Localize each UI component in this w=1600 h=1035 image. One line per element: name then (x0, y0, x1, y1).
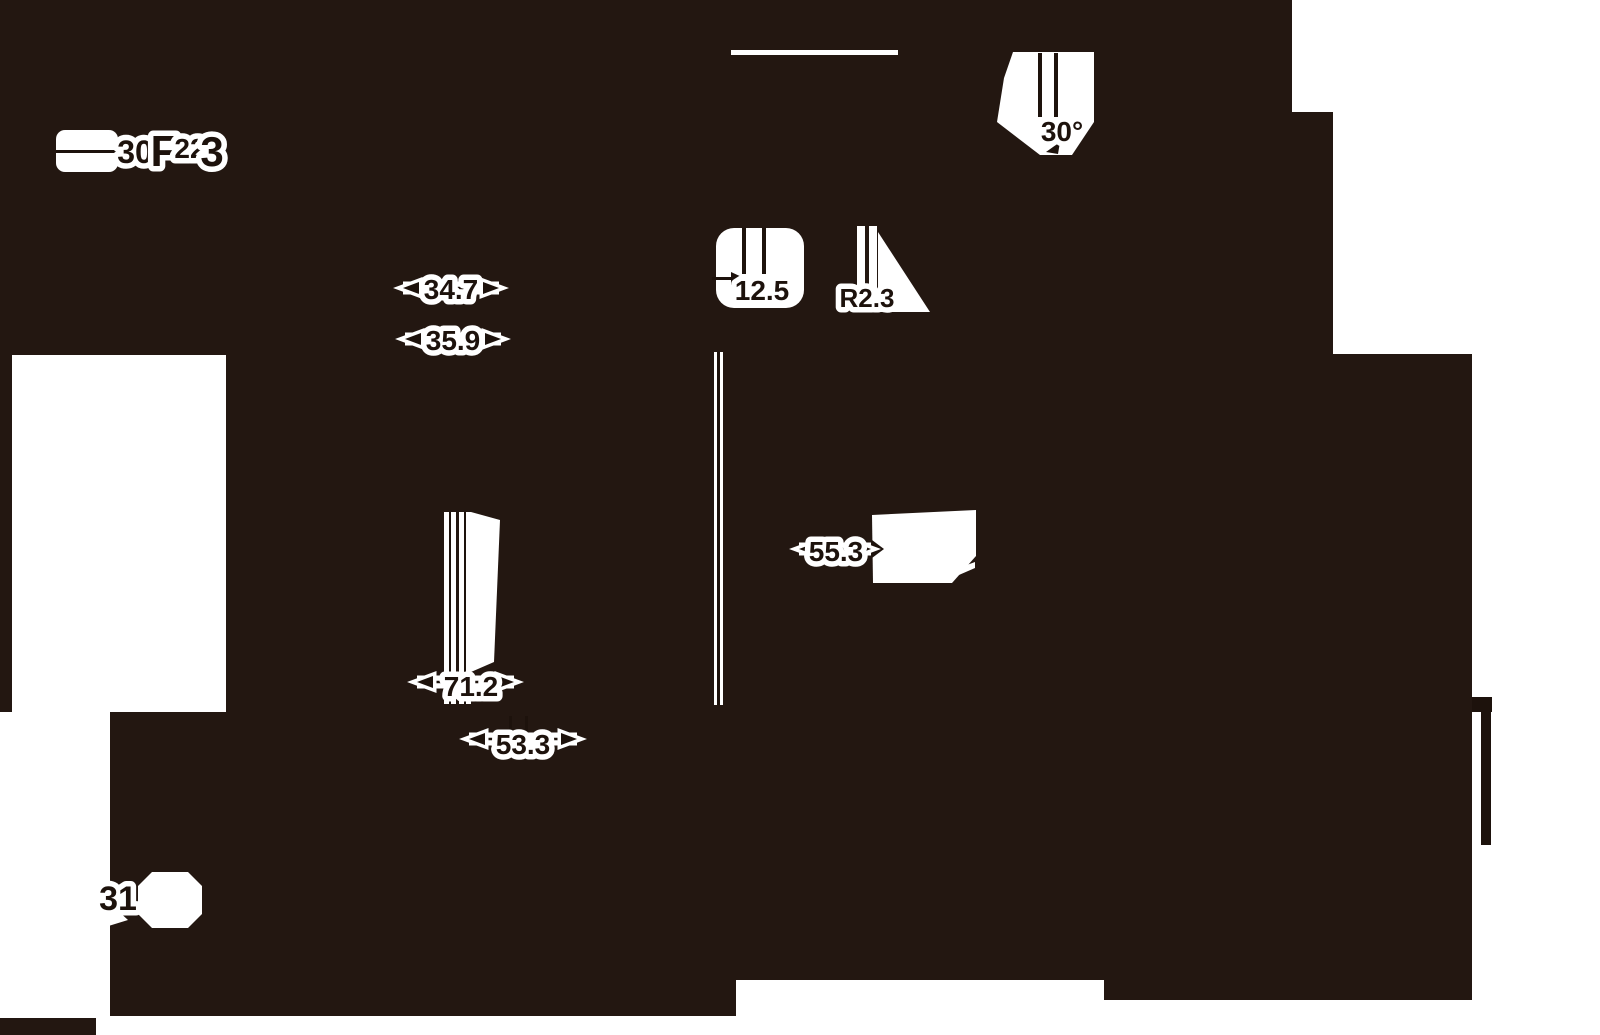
dim-712-arrow-right (498, 676, 514, 688)
dim-359-arrow-right (485, 333, 501, 345)
label-r23: R2.3 (840, 283, 895, 313)
dim-712-label: 71.2 (444, 671, 499, 702)
label-30: 30 (117, 134, 153, 170)
dim-347-arrow-left (403, 282, 419, 294)
dim-347-label: 34.7 (424, 274, 479, 305)
ext-line-125-core (717, 352, 720, 705)
technical-drawing: 34.735.953.355.371.212.5R2.330°3130F223 (0, 0, 1600, 1035)
label-31: 31 (99, 880, 137, 918)
dim-712-arrow-left (417, 676, 433, 688)
right-black-bar (1481, 697, 1491, 845)
deg30-ext-a (1038, 53, 1042, 117)
label-f: F (151, 127, 178, 176)
dim-359-arrow-left (405, 333, 421, 345)
label-30deg: 30° (1041, 116, 1083, 147)
dim-359-label: 35.9 (426, 325, 481, 356)
dim-347-arrow-right (483, 282, 499, 294)
bottom-white-strip (96, 1016, 736, 1035)
dim-533-label: 53.3 (496, 729, 551, 760)
left-white-column (0, 712, 110, 1018)
dim-553-label: 55.3 (809, 536, 864, 567)
dim-533-arrow-left (469, 733, 485, 745)
deg30-ext-b (1054, 53, 1058, 117)
drawing-canvas: 34.735.953.355.371.212.5R2.330°3130F223 (0, 0, 1600, 1035)
blob-31 (138, 872, 202, 928)
l125-ext-b (762, 228, 766, 274)
label-125: 12.5 (735, 275, 790, 306)
left-white-rect (12, 355, 226, 712)
bottom-white-mid (736, 980, 1104, 1035)
bottom-white-right (1104, 1000, 1472, 1035)
l125-ext-a (742, 228, 746, 274)
right-black-notch (1472, 697, 1492, 712)
dim-533-arrow-right (561, 733, 577, 745)
label-3: 3 (200, 128, 223, 175)
top-edge-line (731, 50, 898, 55)
